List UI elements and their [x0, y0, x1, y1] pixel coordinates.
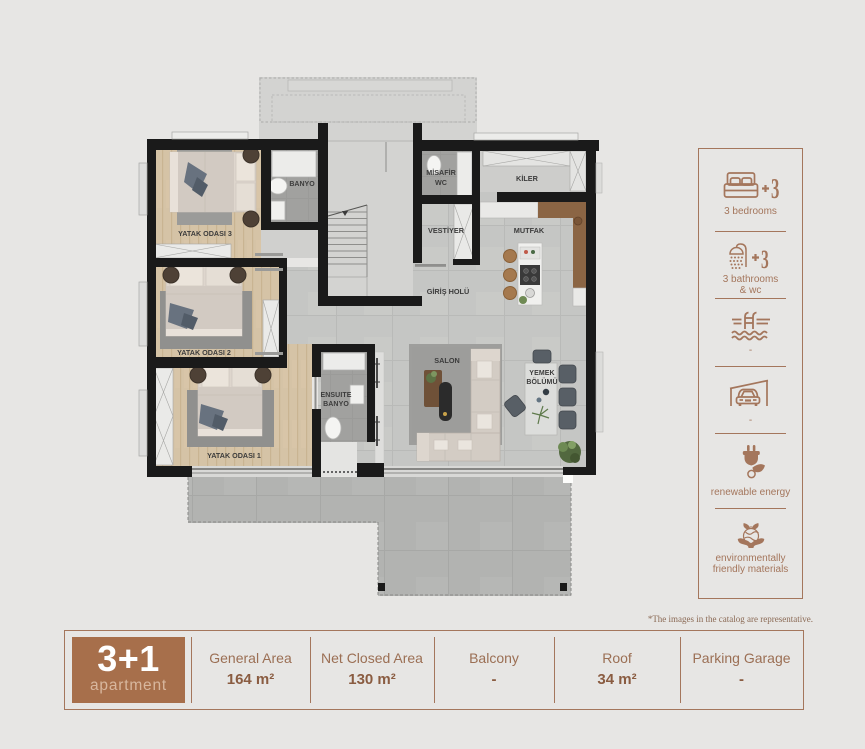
svg-text:YEMEK: YEMEK [529, 370, 554, 377]
svg-text:MUTFAK: MUTFAK [514, 226, 545, 235]
svg-text:YATAK ODASI 2: YATAK ODASI 2 [177, 348, 231, 357]
svg-text:SALON: SALON [434, 356, 460, 365]
svg-text:BÖLÜMÜ: BÖLÜMÜ [526, 377, 557, 386]
svg-text:VESTİYER: VESTİYER [428, 226, 465, 235]
svg-text:3: 3 [771, 172, 779, 201]
svg-text:3: 3 [761, 245, 769, 272]
svg-text:BANYO: BANYO [289, 181, 315, 188]
svg-text:KİLER: KİLER [516, 174, 539, 183]
svg-text:ENSUITE: ENSUITE [320, 392, 351, 399]
svg-text:BANYO: BANYO [323, 401, 349, 408]
svg-text:WC: WC [435, 178, 447, 187]
svg-text:YATAK ODASI 1: YATAK ODASI 1 [207, 451, 261, 460]
svg-text:MİSAFİR: MİSAFİR [426, 168, 456, 177]
svg-text:YATAK ODASI 3: YATAK ODASI 3 [178, 229, 232, 238]
svg-text:GİRİŞ HOLÜ: GİRİŞ HOLÜ [427, 287, 470, 296]
